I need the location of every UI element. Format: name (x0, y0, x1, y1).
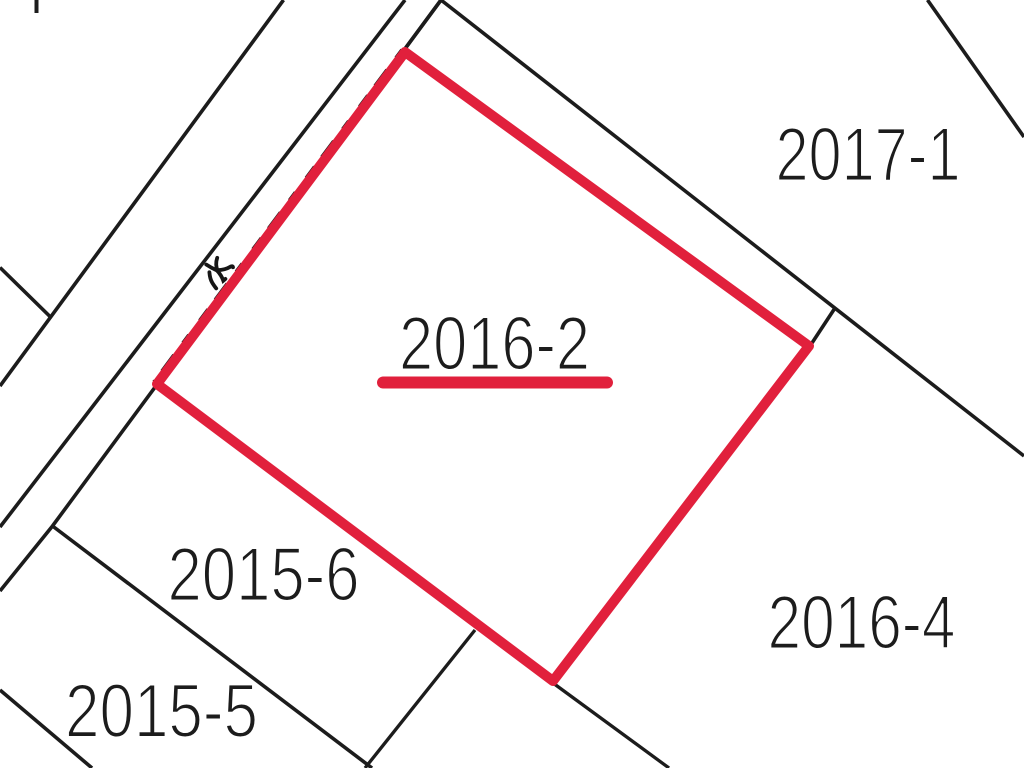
svg-text:2016-4: 2016-4 (768, 581, 956, 666)
svg-text:2015-6: 2015-6 (168, 533, 360, 618)
svg-text:2016-2: 2016-2 (399, 302, 590, 387)
svg-text:2015-5: 2015-5 (65, 669, 258, 754)
svg-text:2017-1: 2017-1 (776, 113, 961, 198)
